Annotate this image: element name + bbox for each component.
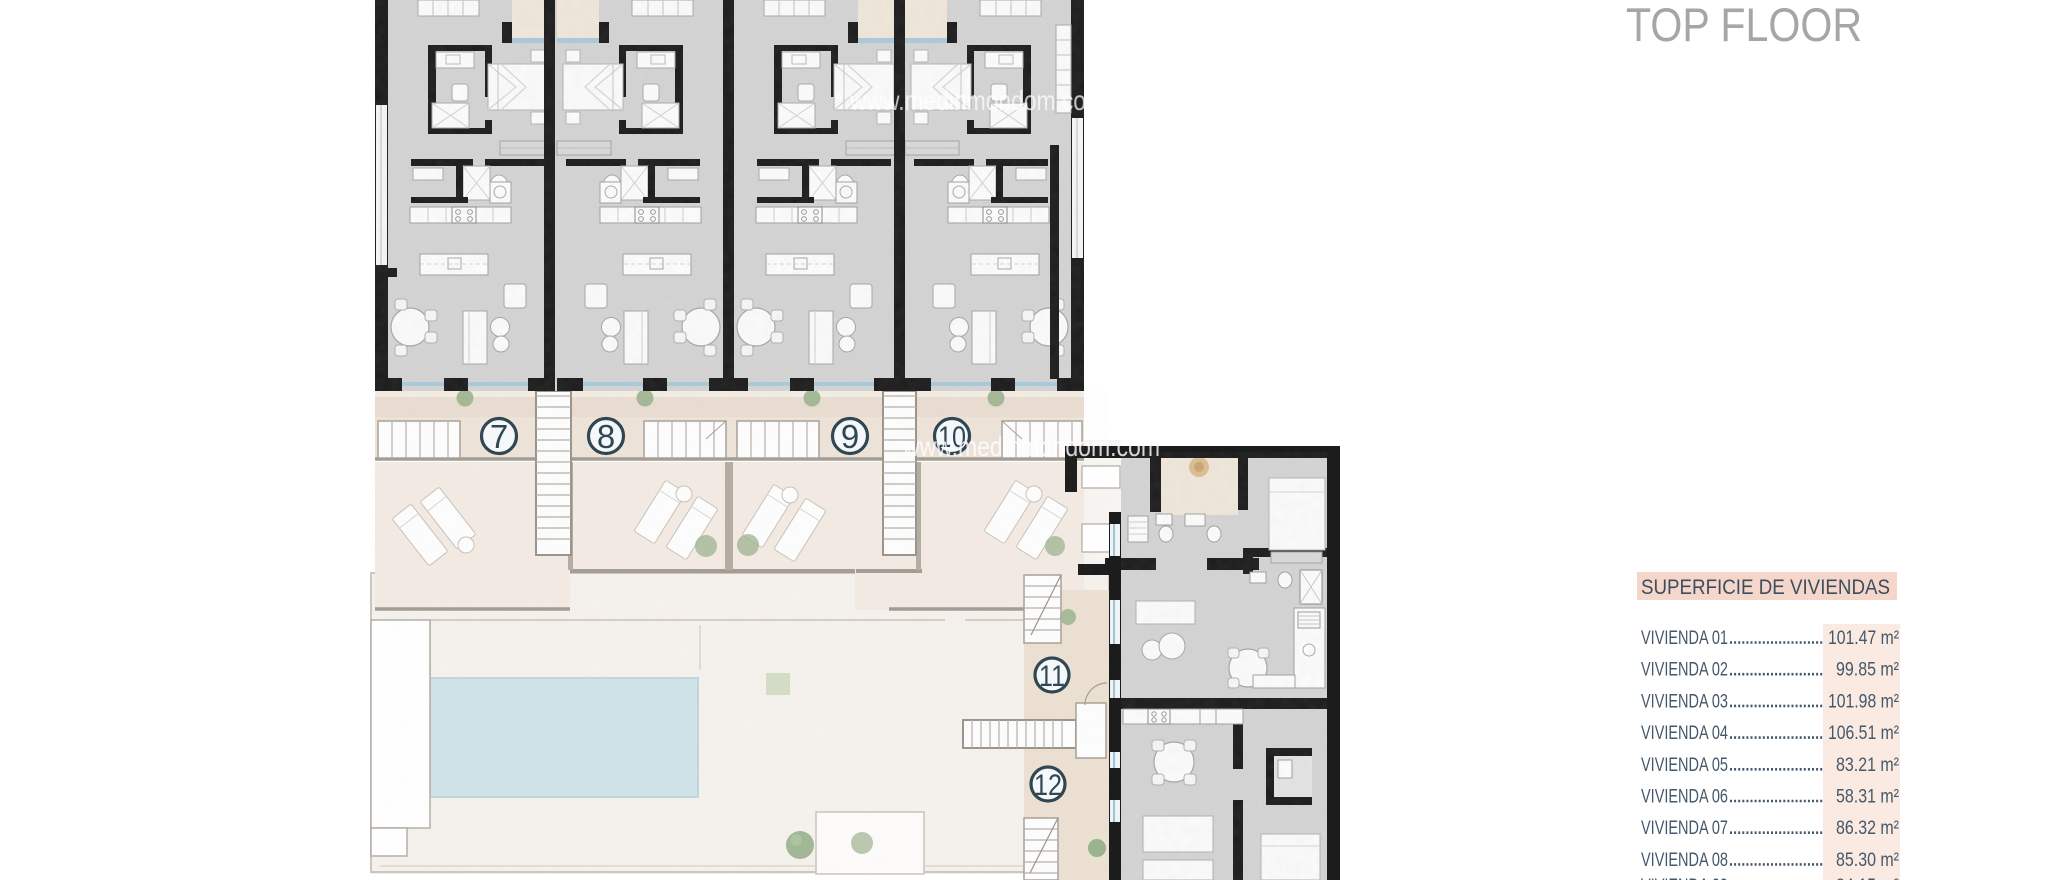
svg-text:101.98 m²: 101.98 m² <box>1828 690 1899 712</box>
svg-text:VIVIENDA 05: VIVIENDA 05 <box>1641 754 1728 776</box>
svg-text:85.30 m²: 85.30 m² <box>1836 849 1899 871</box>
svg-text:58.31 m²: 58.31 m² <box>1836 786 1899 808</box>
svg-text:www.medinmondom.com: www.medinmondom.com <box>902 431 1160 462</box>
svg-text:84.15 m²: 84.15 m² <box>1836 875 1899 880</box>
svg-text:VIVIENDA 03: VIVIENDA 03 <box>1641 690 1728 712</box>
svg-text:106.51 m²: 106.51 m² <box>1828 722 1899 744</box>
svg-text:VIVIENDA 02: VIVIENDA 02 <box>1641 659 1728 681</box>
svg-text:TOP FLOOR: TOP FLOOR <box>1626 0 1862 51</box>
svg-text:VIVIENDA 09: VIVIENDA 09 <box>1641 875 1728 880</box>
svg-text:VIVIENDA 07: VIVIENDA 07 <box>1641 817 1728 839</box>
svg-text:VIVIENDA 04: VIVIENDA 04 <box>1641 722 1728 744</box>
svg-text:86.32 m²: 86.32 m² <box>1836 817 1899 839</box>
svg-text:83.21 m²: 83.21 m² <box>1836 754 1899 776</box>
svg-text:SUPERFICIE DE VIVIENDAS: SUPERFICIE DE VIVIENDAS <box>1641 575 1890 599</box>
svg-text:VIVIENDA 08: VIVIENDA 08 <box>1641 849 1728 871</box>
svg-text:101.47 m²: 101.47 m² <box>1828 627 1899 649</box>
svg-text:www.medinmondom.com: www.medinmondom.com <box>849 85 1105 116</box>
svg-text:VIVIENDA 06: VIVIENDA 06 <box>1641 786 1728 808</box>
svg-text:VIVIENDA 01: VIVIENDA 01 <box>1641 627 1728 649</box>
svg-text:99.85 m²: 99.85 m² <box>1836 659 1899 681</box>
